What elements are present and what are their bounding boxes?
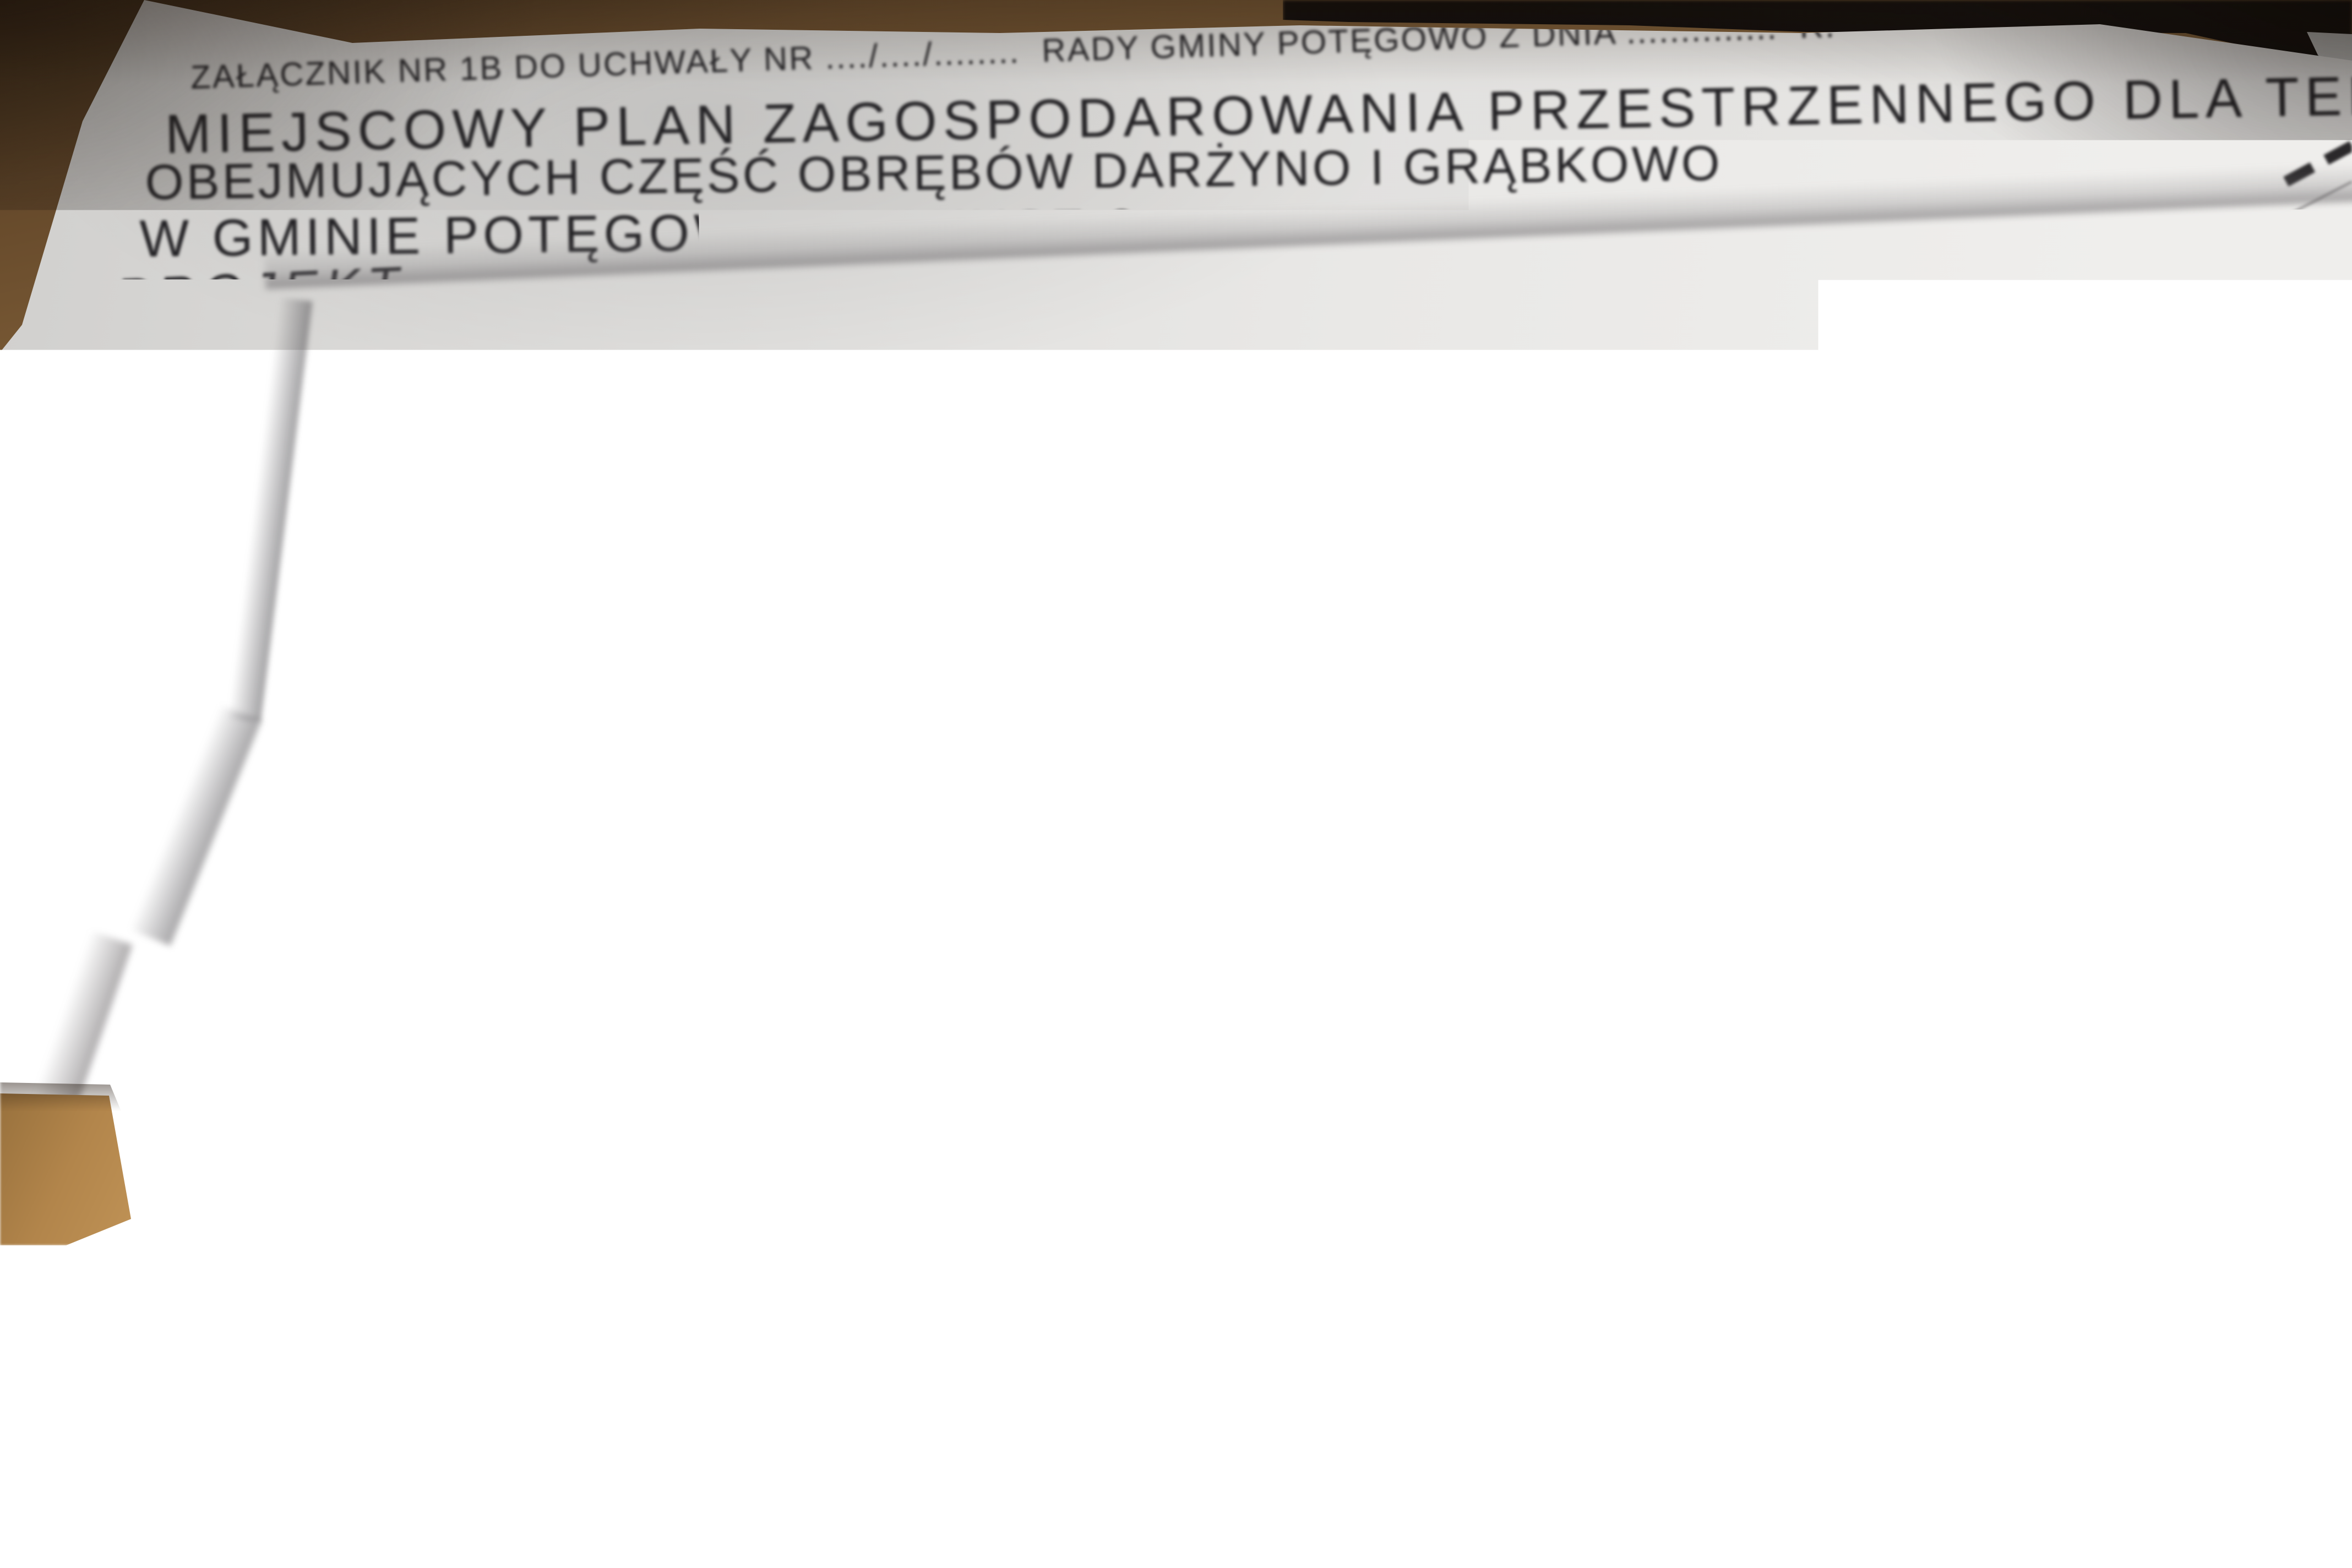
svg-text:22.MN: 22.MN xyxy=(1778,1153,1912,1204)
svg-text:262: 262 xyxy=(1684,1401,1700,1412)
svg-text:21.R: 21.R xyxy=(1823,1525,1902,1562)
svg-text:263: 263 xyxy=(1558,1158,1574,1169)
svg-text:265/2: 265/2 xyxy=(1145,1306,1168,1318)
svg-text:20.ZP: 20.ZP xyxy=(1336,1374,1434,1415)
svg-text:2.KDW: 2.KDW xyxy=(2039,1336,2068,1416)
svg-text:265/4: 265/4 xyxy=(1299,1302,1322,1314)
svg-text:21.R: 21.R xyxy=(1325,1213,1409,1256)
